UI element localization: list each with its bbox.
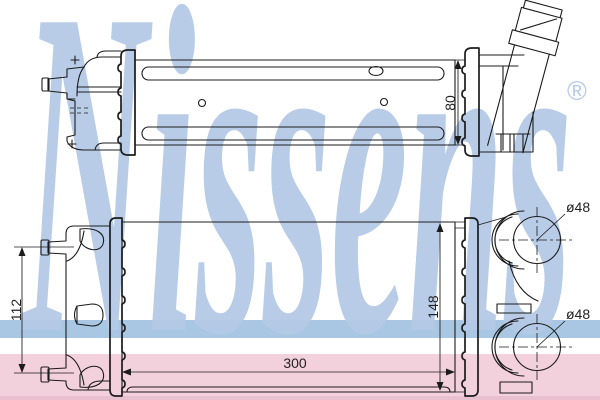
dim-148-label: 148 [425,295,441,319]
dim-pipe-bottom-diameter-label: ø48 [566,306,590,322]
registered-trademark-icon: ® [567,76,587,106]
dim-pipe-top-diameter-label: ø48 [566,199,590,215]
intercooler-technical-drawing: Nissens ® 80 [0,0,600,400]
dim-300-label: 300 [283,355,307,371]
dim-112-label: 112 [8,299,24,322]
dim-80-label: 80 [442,95,458,111]
